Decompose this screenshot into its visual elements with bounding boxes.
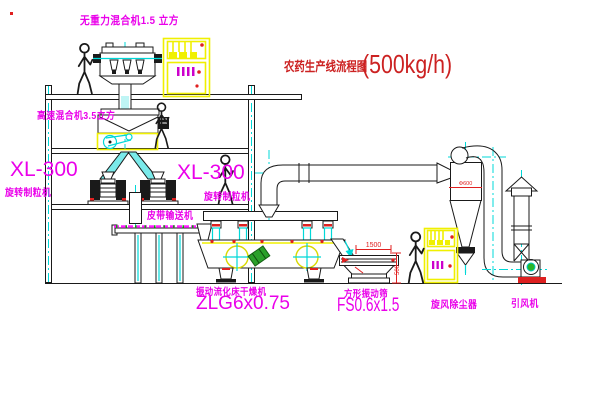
diagram-title: 农药生产线流程图 [284, 56, 367, 75]
cabinet-buttons [177, 67, 195, 76]
control-cabinet-upper [164, 39, 210, 97]
label-gravity-mixer: 无重力混合机1.5 立方 [80, 12, 179, 28]
vibrating-screen-drawing: 1500 500 [331, 239, 401, 283]
label-cyclone: 旋风除尘器 [431, 296, 477, 311]
process-flow-diagram: 1500 500 Φ600 [0, 0, 600, 403]
label-granulator-right-model: XL-300 [177, 161, 245, 185]
label-granulator-left-model: XL-300 [10, 158, 78, 182]
exhaust-stack-drawing [506, 177, 537, 261]
label-granulator-left-name: 旋转制粒机 [5, 184, 51, 199]
belt-conveyor-drawing [112, 225, 200, 283]
rotary-granulator-left [88, 172, 128, 205]
label-induced-draft-fan: 引风机 [511, 295, 539, 310]
worker-figure-icon [409, 232, 424, 283]
granulator-discharge-chute [130, 193, 142, 224]
control-cabinet-lower [425, 229, 458, 283]
dryer-spring-mounts [211, 221, 333, 240]
label-dryer-model: ZLG6x0.75 [196, 293, 290, 315]
diagram-title-capacity: (500kg/h) [362, 49, 452, 80]
cabinet-buttons [432, 261, 443, 269]
cyclone-diameter-text: Φ600 [459, 181, 473, 187]
label-high-speed-mixer: 高速混合机3.5立方 [37, 107, 115, 122]
label-granulator-right-name: 旋转制粒机 [204, 188, 250, 203]
induced-draft-fan-drawing [518, 260, 546, 284]
fluid-bed-dryer-drawing [197, 212, 345, 283]
dimension-height-text: 500 [395, 264, 401, 275]
label-belt-conveyor: 皮带输送机 [147, 207, 193, 222]
rotary-granulator-right [138, 172, 178, 205]
dimension-1500: 1500 [356, 242, 391, 254]
main-exhaust-duct [261, 165, 437, 205]
label-screen-model: FS0.6x1.5 [337, 295, 399, 317]
worker-figure-icon [78, 44, 93, 94]
dimension-1500-text: 1500 [366, 242, 382, 249]
red-marker-dot [10, 12, 13, 15]
